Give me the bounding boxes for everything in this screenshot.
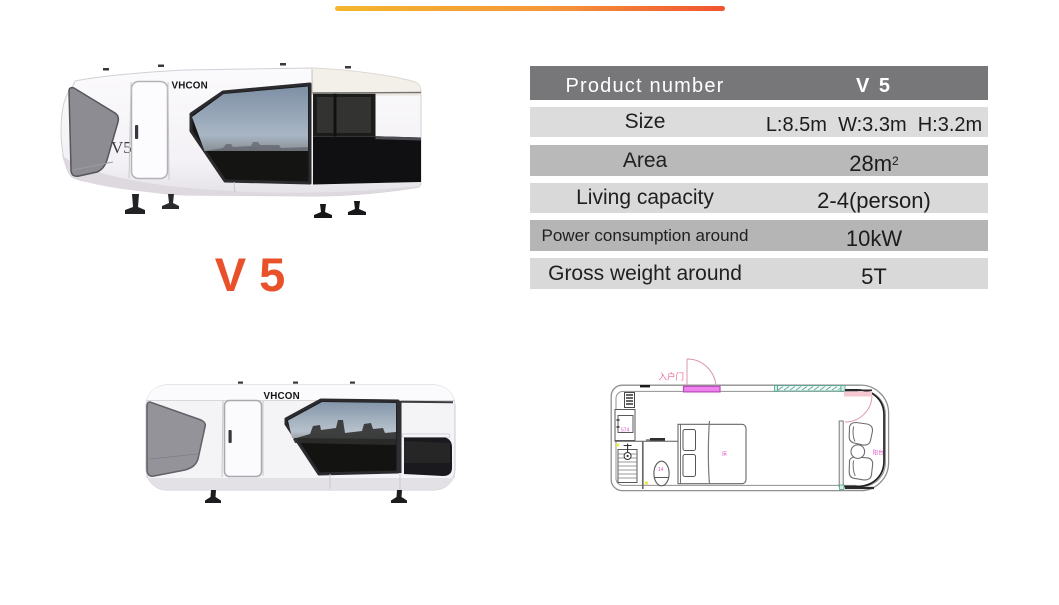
- svg-text:VHCON: VHCON: [172, 81, 208, 92]
- svg-text:阳台: 阳台: [873, 449, 885, 457]
- svg-text:床: 床: [722, 451, 727, 458]
- svg-text:VHCON: VHCON: [264, 391, 300, 402]
- svg-text:入户门: 入户门: [659, 372, 685, 382]
- svg-text:574: 574: [621, 428, 630, 434]
- svg-text:V5: V5: [111, 138, 132, 157]
- svg-text:14: 14: [658, 467, 664, 473]
